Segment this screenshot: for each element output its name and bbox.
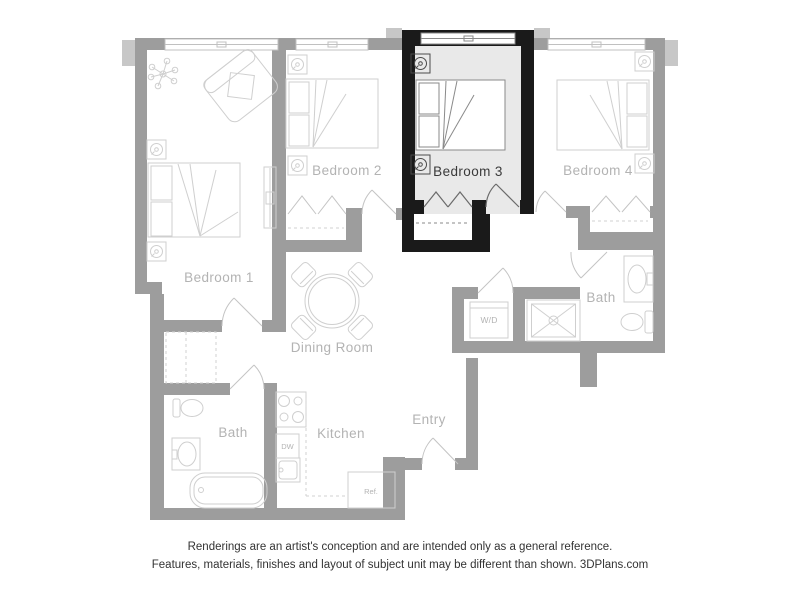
- brand-text: 3DPlans.com: [580, 559, 648, 571]
- room-label-bedroom-3: Bedroom 3: [433, 164, 503, 179]
- sofa-chair: [201, 47, 280, 125]
- closet-bifold-doors: [592, 196, 650, 221]
- dining-chair: [290, 261, 318, 289]
- room-label-entry: Entry: [412, 412, 446, 427]
- ceiling-fixture-icon: [147, 140, 166, 159]
- bathtub: [190, 473, 267, 508]
- disclaimer-line-2: Features, materials, finishes and layout…: [0, 556, 800, 574]
- ceiling-fixture-icon: [288, 156, 307, 175]
- ceiling-fixture-icon: [635, 52, 654, 71]
- room-label-kitchen: Kitchen: [317, 426, 365, 441]
- floor-plan: Bedroom 1 Bedroom 2 Bedroom 3 Bedroom 4 …: [0, 0, 800, 535]
- plant: [148, 58, 178, 89]
- disclaimer-line-1: Renderings are an artist's conception an…: [0, 538, 800, 556]
- room-label-bath-lower: Bath: [218, 425, 247, 440]
- washer-dryer-label: W/D: [480, 315, 497, 325]
- bed: [416, 80, 505, 150]
- window: [296, 39, 368, 50]
- room-label-bedroom-2: Bedroom 2: [312, 163, 382, 178]
- kitchen-counter: [306, 392, 348, 496]
- ceiling-fixture-icon: [635, 154, 654, 173]
- room-label-bath-upper: Bath: [586, 290, 615, 305]
- door-swing: [571, 252, 607, 278]
- room-label-bedroom-1: Bedroom 1: [184, 270, 254, 285]
- dining-chair: [347, 314, 375, 342]
- door-swing: [478, 268, 513, 293]
- bed: [557, 80, 649, 150]
- stove: [276, 392, 306, 427]
- disclaimer: Renderings are an artist's conception an…: [0, 538, 800, 574]
- window: [548, 39, 645, 50]
- door-swing: [422, 438, 458, 464]
- shower: [527, 300, 580, 341]
- room-label-dining-room: Dining Room: [291, 340, 373, 355]
- refrigerator-label: Ref.: [364, 487, 378, 496]
- dining-chair: [290, 314, 318, 342]
- ceiling-fixture-icon: [147, 242, 166, 261]
- closet-bifold-doors: [288, 196, 346, 228]
- toilet: [173, 399, 203, 417]
- dining-chair: [347, 261, 375, 289]
- toilet: [621, 311, 653, 333]
- door-swing: [362, 190, 396, 214]
- sink: [172, 438, 200, 470]
- window: [165, 39, 278, 50]
- linen-closet: [166, 332, 216, 383]
- window: [421, 33, 515, 44]
- door-swing: [536, 191, 566, 212]
- room-label-bedroom-4: Bedroom 4: [563, 163, 633, 178]
- door-swing: [222, 298, 262, 326]
- dishwasher-label: DW: [281, 442, 294, 451]
- kitchen-sink: [276, 458, 300, 482]
- bed: [148, 163, 240, 237]
- bed: [286, 79, 378, 148]
- door-swing: [230, 365, 264, 389]
- sink: [624, 256, 653, 302]
- ceiling-fixture-icon: [288, 55, 307, 74]
- dining-table: [305, 274, 359, 328]
